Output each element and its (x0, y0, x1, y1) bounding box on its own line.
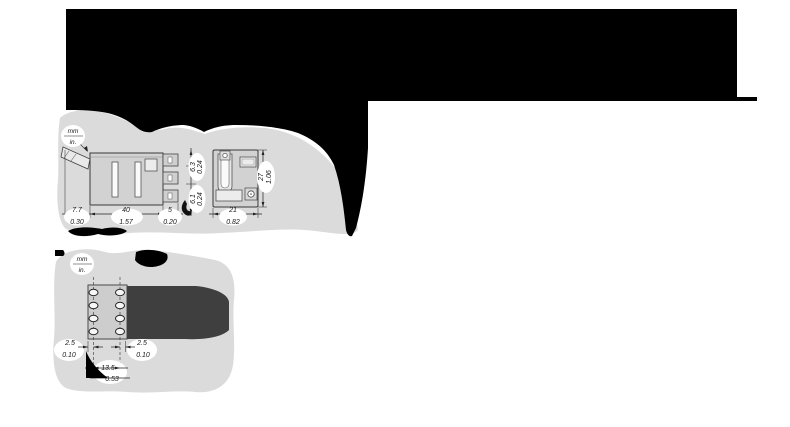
terminal-hole-oval (89, 315, 98, 321)
unit-label-in: in. (79, 267, 86, 274)
vent-slot (112, 162, 118, 197)
redaction-blob-corner (55, 250, 65, 256)
dark-gray-blob (127, 286, 229, 339)
dim-pitch1-in: 0.24 (197, 160, 204, 174)
label-window (240, 157, 256, 167)
dim-offset-right-mm: 2.5 (136, 340, 147, 347)
dim-pitch2-in: 0.24 (197, 192, 204, 206)
dim-clip-mm: 7.7 (72, 207, 83, 214)
dim-height-mm: 27 (258, 172, 265, 182)
dim-offset-left-mm: 2.5 (64, 340, 75, 347)
unit-label-in: in. (70, 139, 77, 146)
clamp-channel (221, 158, 229, 188)
bottom-window (216, 190, 242, 201)
datasheet-dimension-page: mm in. 7.7 0.30 40 1.57 5 0.20 21 0.82 2… (0, 0, 790, 427)
dim-width-in: 0.82 (226, 219, 240, 226)
terminal-hole-oval (116, 302, 125, 308)
dim-offset-right-in: 0.10 (136, 352, 150, 359)
screw-center (250, 193, 252, 195)
dim-span-in: 0.53 (105, 376, 119, 383)
terminal-hole-oval (89, 328, 98, 334)
dim-width-mm: 21 (228, 207, 237, 214)
front-view (213, 150, 258, 207)
terminal-hole (168, 157, 172, 163)
dim-pitch1-mm: 6.3 (190, 162, 197, 172)
terminal-hole-oval (116, 289, 125, 295)
dim-terminal-mm: 5 (168, 207, 172, 214)
dim-height-in: 1.06 (266, 170, 273, 184)
dim-terminal-in: 0.20 (163, 219, 177, 226)
terminal-hole-oval (116, 328, 125, 334)
dim-depth-mm: 40 (122, 207, 130, 214)
unit-label-mm: mm (77, 256, 88, 263)
terminal-hole (168, 193, 172, 199)
terminal-hole-oval (89, 302, 98, 308)
terminal-hole-oval (116, 315, 125, 321)
dim-offset-left-in: 0.10 (62, 352, 76, 359)
dim-clip-in: 0.30 (70, 219, 84, 226)
clamp-screw (223, 153, 227, 157)
dim-depth-in: 1.57 (119, 219, 134, 226)
faston-terminals (163, 154, 178, 202)
dim-span-mm: 13.5 (101, 365, 115, 372)
side-window (145, 159, 157, 171)
terminal-hole-oval (89, 289, 98, 295)
terminal-hole (168, 175, 172, 181)
dimension-drawing-svg: mm in. 7.7 0.30 40 1.57 5 0.20 21 0.82 2… (0, 0, 790, 427)
dim-pitch2-mm: 6.1 (190, 194, 197, 204)
vent-slot (135, 162, 141, 197)
unit-label-mm: mm (68, 128, 79, 135)
